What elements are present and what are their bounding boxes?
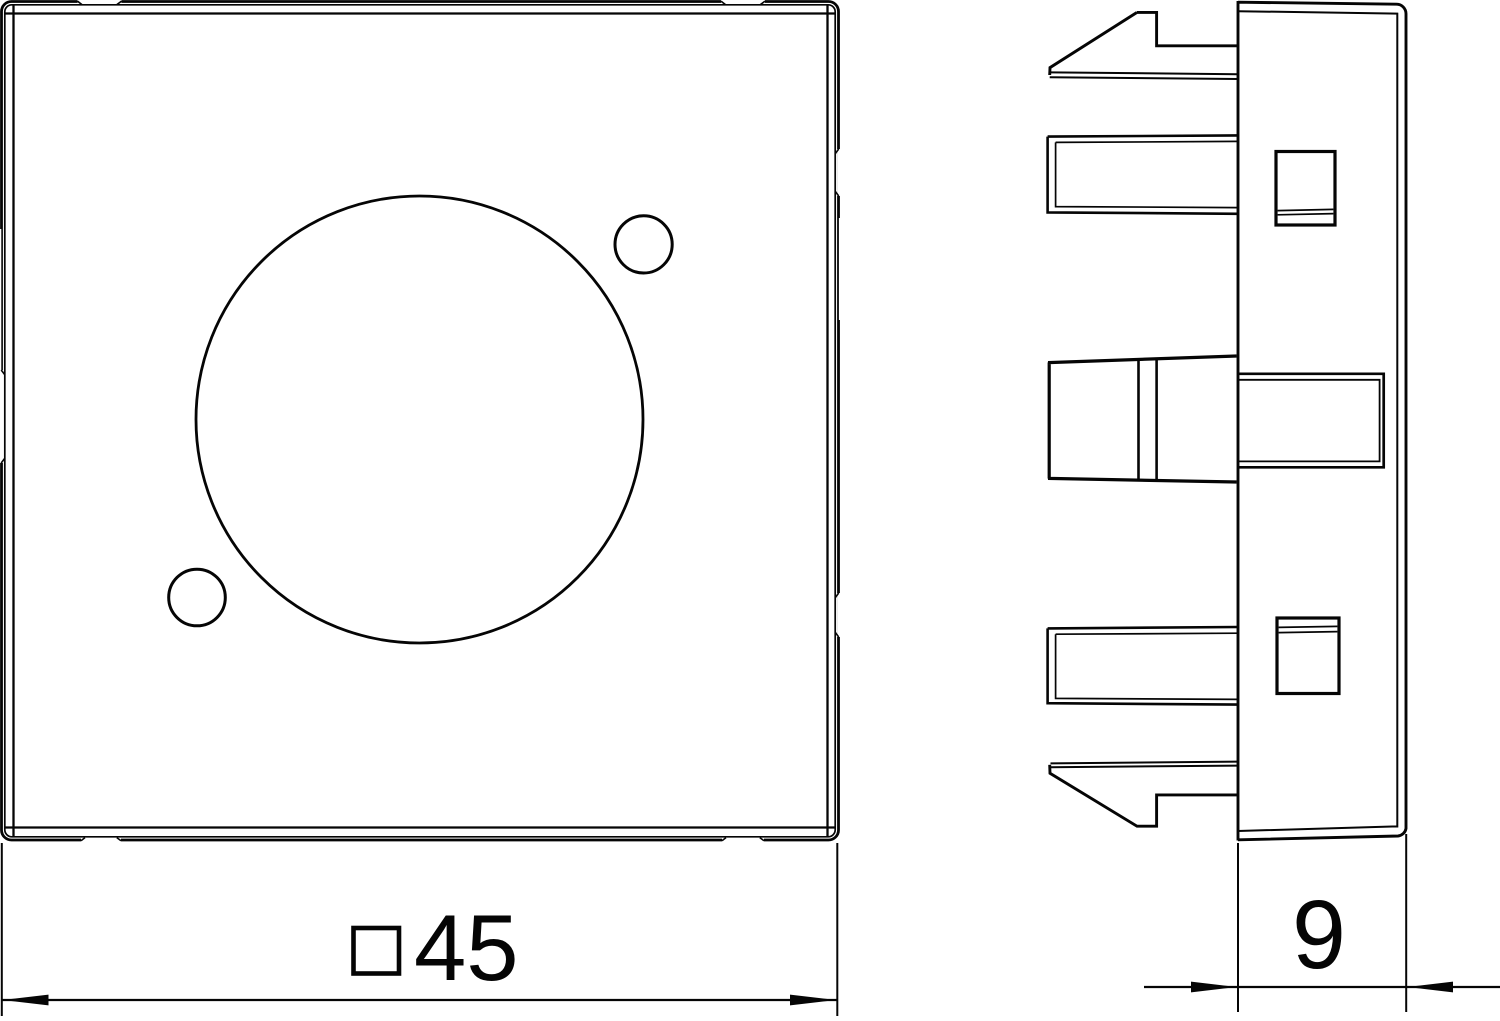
svg-text:45: 45 — [414, 895, 519, 1000]
svg-text:9: 9 — [1292, 880, 1346, 989]
